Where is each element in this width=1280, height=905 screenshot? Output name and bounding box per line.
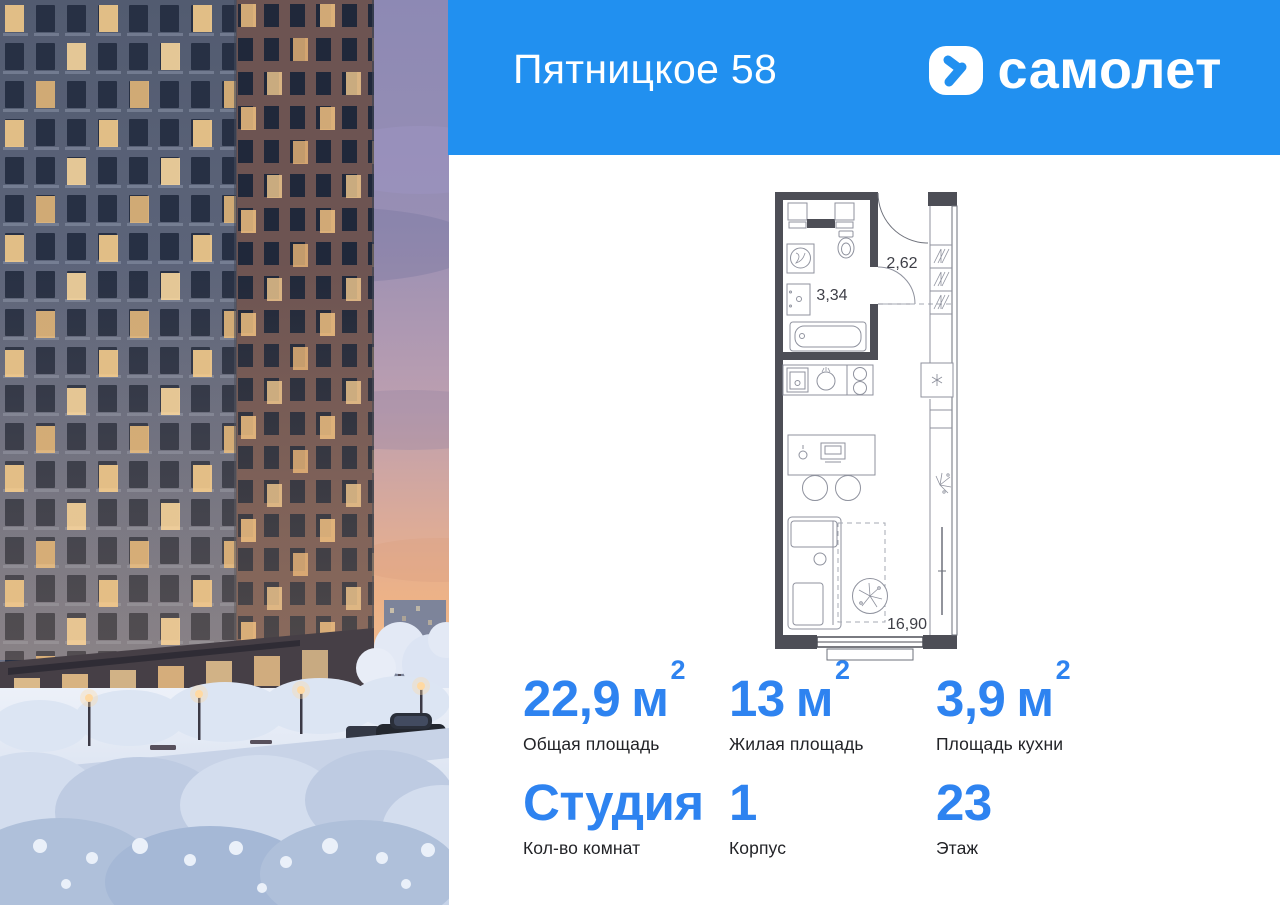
bathroom-shelf bbox=[807, 219, 835, 228]
desk bbox=[788, 435, 875, 475]
stat-value: 23 bbox=[936, 776, 1005, 830]
sink-icon bbox=[787, 284, 810, 315]
living-room-furniture bbox=[788, 435, 888, 629]
area-label-bathroom: 3,34 bbox=[816, 287, 847, 304]
hanger-hatch bbox=[934, 249, 949, 309]
building-photo-illustration bbox=[0, 0, 449, 905]
project-title: Пятницкое 58 bbox=[513, 46, 777, 93]
entrance-door bbox=[878, 193, 928, 243]
floor-plant-icon bbox=[853, 579, 888, 614]
cabinet-icon bbox=[835, 203, 854, 228]
toilet-icon bbox=[838, 231, 854, 258]
area-label-living-room: 16,90 bbox=[887, 616, 927, 633]
samolet-logo-icon bbox=[929, 46, 983, 95]
window-wall bbox=[952, 206, 957, 635]
stat-label: Жилая площадь bbox=[729, 734, 864, 755]
bathroom-fixtures bbox=[787, 203, 866, 351]
stat-floor: 23 Этаж bbox=[936, 776, 1005, 859]
fridge-icon bbox=[921, 363, 953, 397]
stat-building: 1 Корпус bbox=[729, 776, 786, 859]
building-photo bbox=[0, 0, 449, 905]
sofa bbox=[788, 517, 841, 629]
chair bbox=[803, 476, 828, 501]
kitchen-fixtures bbox=[783, 365, 873, 395]
chair bbox=[836, 476, 861, 501]
stove-icon bbox=[847, 365, 873, 395]
washer-icon bbox=[788, 203, 807, 228]
stat-label: Этаж bbox=[936, 838, 1005, 859]
foreground-bushes bbox=[0, 818, 449, 905]
stat-label: Общая площадь bbox=[523, 734, 685, 755]
bathtub-icon bbox=[790, 322, 866, 351]
stat-value: 1 bbox=[729, 776, 786, 830]
stat-value: Студия bbox=[523, 776, 717, 830]
tv-icon bbox=[938, 527, 946, 615]
stat-label: Кол-во комнат bbox=[523, 838, 717, 859]
floor-plan: 3,34 2,62 16,90 bbox=[775, 187, 965, 665]
main-building bbox=[0, 0, 374, 732]
stat-value: 22,9м2 bbox=[523, 672, 685, 726]
stat-kitchen-area: 3,9м2 Площадь кухни bbox=[936, 672, 1070, 755]
boiler-icon bbox=[787, 244, 814, 273]
brand-name: самолет bbox=[998, 43, 1222, 97]
shelf-plant-icon bbox=[936, 473, 951, 493]
header-bar: Пятницкое 58 самолет bbox=[448, 0, 1280, 155]
stat-label: Корпус bbox=[729, 838, 786, 859]
listing-card: Пятницкое 58 самолет bbox=[0, 0, 1280, 905]
stat-value: 3,9м2 bbox=[936, 672, 1070, 726]
bottom-window bbox=[817, 637, 923, 660]
bathroom-door bbox=[878, 267, 915, 304]
stat-value: 13м2 bbox=[729, 672, 864, 726]
stat-rooms: Студия Кол-во комнат bbox=[523, 776, 717, 859]
stat-label: Площадь кухни bbox=[936, 734, 1070, 755]
stat-living-area: 13м2 Жилая площадь bbox=[729, 672, 864, 755]
area-label-hallway: 2,62 bbox=[886, 255, 917, 272]
brand-logo: самолет bbox=[929, 42, 1222, 98]
kitchen-sink-icon bbox=[787, 368, 808, 392]
floor-plan-drawing: 3,34 2,62 16,90 bbox=[775, 187, 965, 665]
stat-total-area: 22,9м2 Общая площадь bbox=[523, 672, 685, 755]
